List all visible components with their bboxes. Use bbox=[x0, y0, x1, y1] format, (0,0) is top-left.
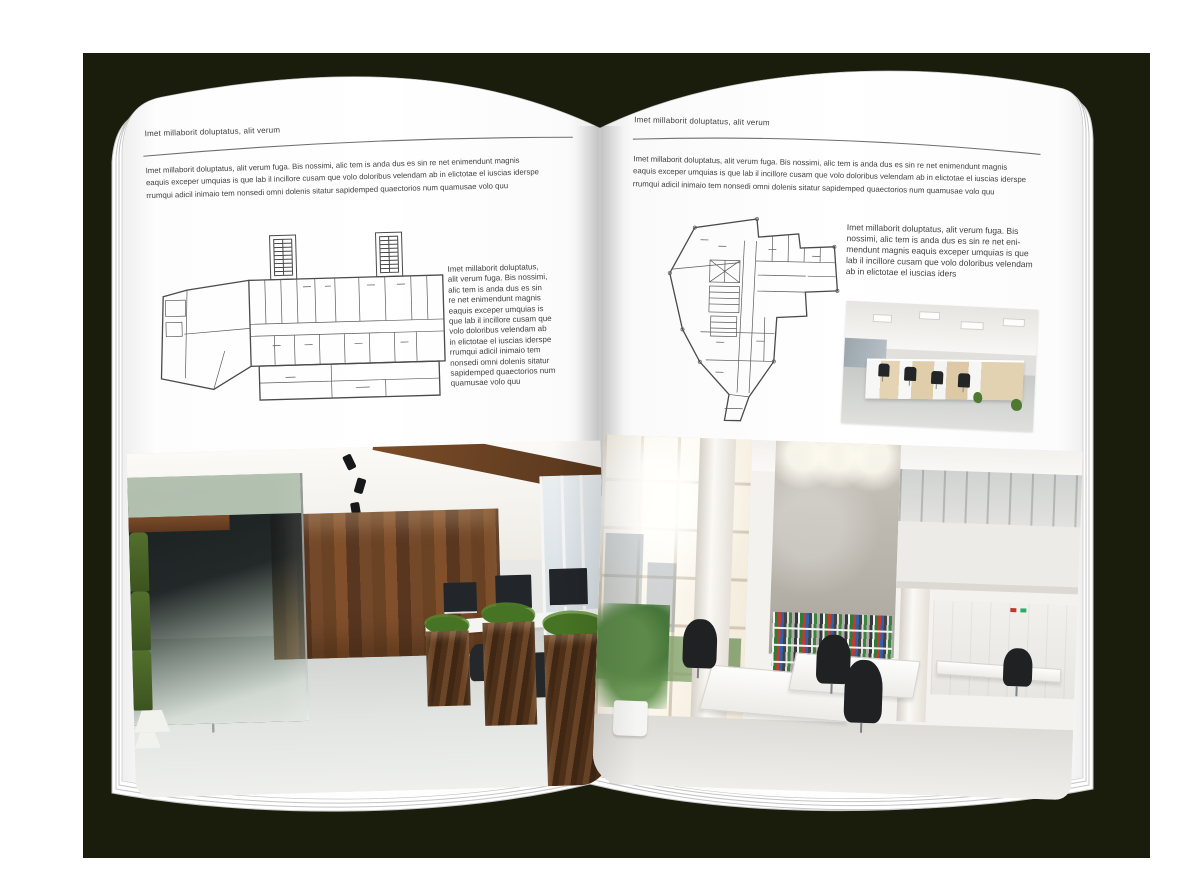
ceiling-light-panel bbox=[873, 314, 893, 322]
ceiling-light-panel bbox=[919, 311, 940, 319]
ceiling-light-panel bbox=[1003, 318, 1024, 328]
pendant-lamp bbox=[134, 710, 171, 733]
ceiling-light-panel bbox=[961, 321, 984, 331]
right-side-paragraph: Imet millaborit doluptatus, alit verum f… bbox=[846, 222, 1055, 282]
photo-right-small-office bbox=[841, 301, 1039, 432]
round-column bbox=[896, 588, 929, 722]
photo-right-floor bbox=[592, 714, 1073, 800]
left-side-paragraph: Imet millaborit doluptatus, alit verum f… bbox=[447, 261, 578, 389]
office-chair bbox=[682, 619, 717, 669]
green-chair bbox=[132, 651, 153, 711]
photo-right-office bbox=[592, 435, 1083, 801]
green-chair bbox=[129, 532, 150, 592]
wood-planter bbox=[482, 621, 537, 726]
office-chair bbox=[958, 373, 970, 387]
floor-plan-right bbox=[644, 211, 844, 425]
glass-railing bbox=[898, 469, 1082, 527]
right-page-content: Imet millaborit doluptatus, alit verum I… bbox=[591, 55, 1092, 814]
office-chair bbox=[878, 363, 890, 377]
exit-sign bbox=[1020, 608, 1026, 612]
photo-left-office bbox=[127, 441, 610, 798]
office-chair bbox=[1003, 648, 1033, 687]
meeting-table bbox=[128, 515, 229, 533]
brochure-mockup: Imet millaborit doluptatus, alit verum I… bbox=[0, 0, 1200, 891]
office-chair bbox=[904, 367, 916, 381]
floor-plan-left bbox=[151, 223, 451, 426]
monitor bbox=[443, 582, 477, 614]
meeting-room-floor bbox=[127, 473, 301, 517]
office-chair bbox=[843, 660, 883, 724]
right-intro-paragraph: Imet millaborit doluptatus, alit verum f… bbox=[633, 153, 1056, 200]
right-running-header: Imet millaborit doluptatus, alit verum bbox=[634, 115, 770, 127]
photo-left-glass-meeting-room bbox=[127, 473, 309, 725]
office-chair bbox=[931, 371, 943, 385]
fire-sign bbox=[1010, 608, 1016, 612]
mezzanine-balcony bbox=[896, 469, 1082, 594]
wood-planter bbox=[426, 630, 471, 707]
left-running-header: Imet millaborit doluptatus, alit verum bbox=[145, 125, 281, 138]
left-intro-paragraph: Imet millaborit doluptatus, alit verum f… bbox=[146, 153, 583, 203]
green-chair bbox=[130, 591, 151, 651]
left-page-content: Imet millaborit doluptatus, alit verum I… bbox=[110, 89, 612, 814]
